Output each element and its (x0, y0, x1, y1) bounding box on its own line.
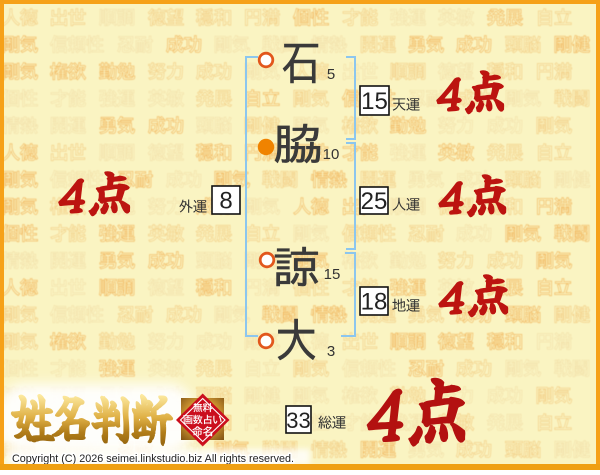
svg-text:33: 33 (286, 408, 310, 433)
svg-text:18: 18 (361, 289, 388, 316)
svg-text:25: 25 (361, 188, 388, 215)
svg-text:5: 5 (327, 66, 335, 83)
svg-text:15: 15 (324, 266, 341, 283)
svg-text:15: 15 (361, 88, 388, 115)
svg-text:8: 8 (219, 188, 232, 215)
svg-text:10: 10 (323, 146, 340, 163)
svg-text:3: 3 (327, 343, 335, 360)
svg-text:Copyright (C) 2026 seimei.link: Copyright (C) 2026 seimei.linkstudio.biz… (12, 453, 294, 465)
